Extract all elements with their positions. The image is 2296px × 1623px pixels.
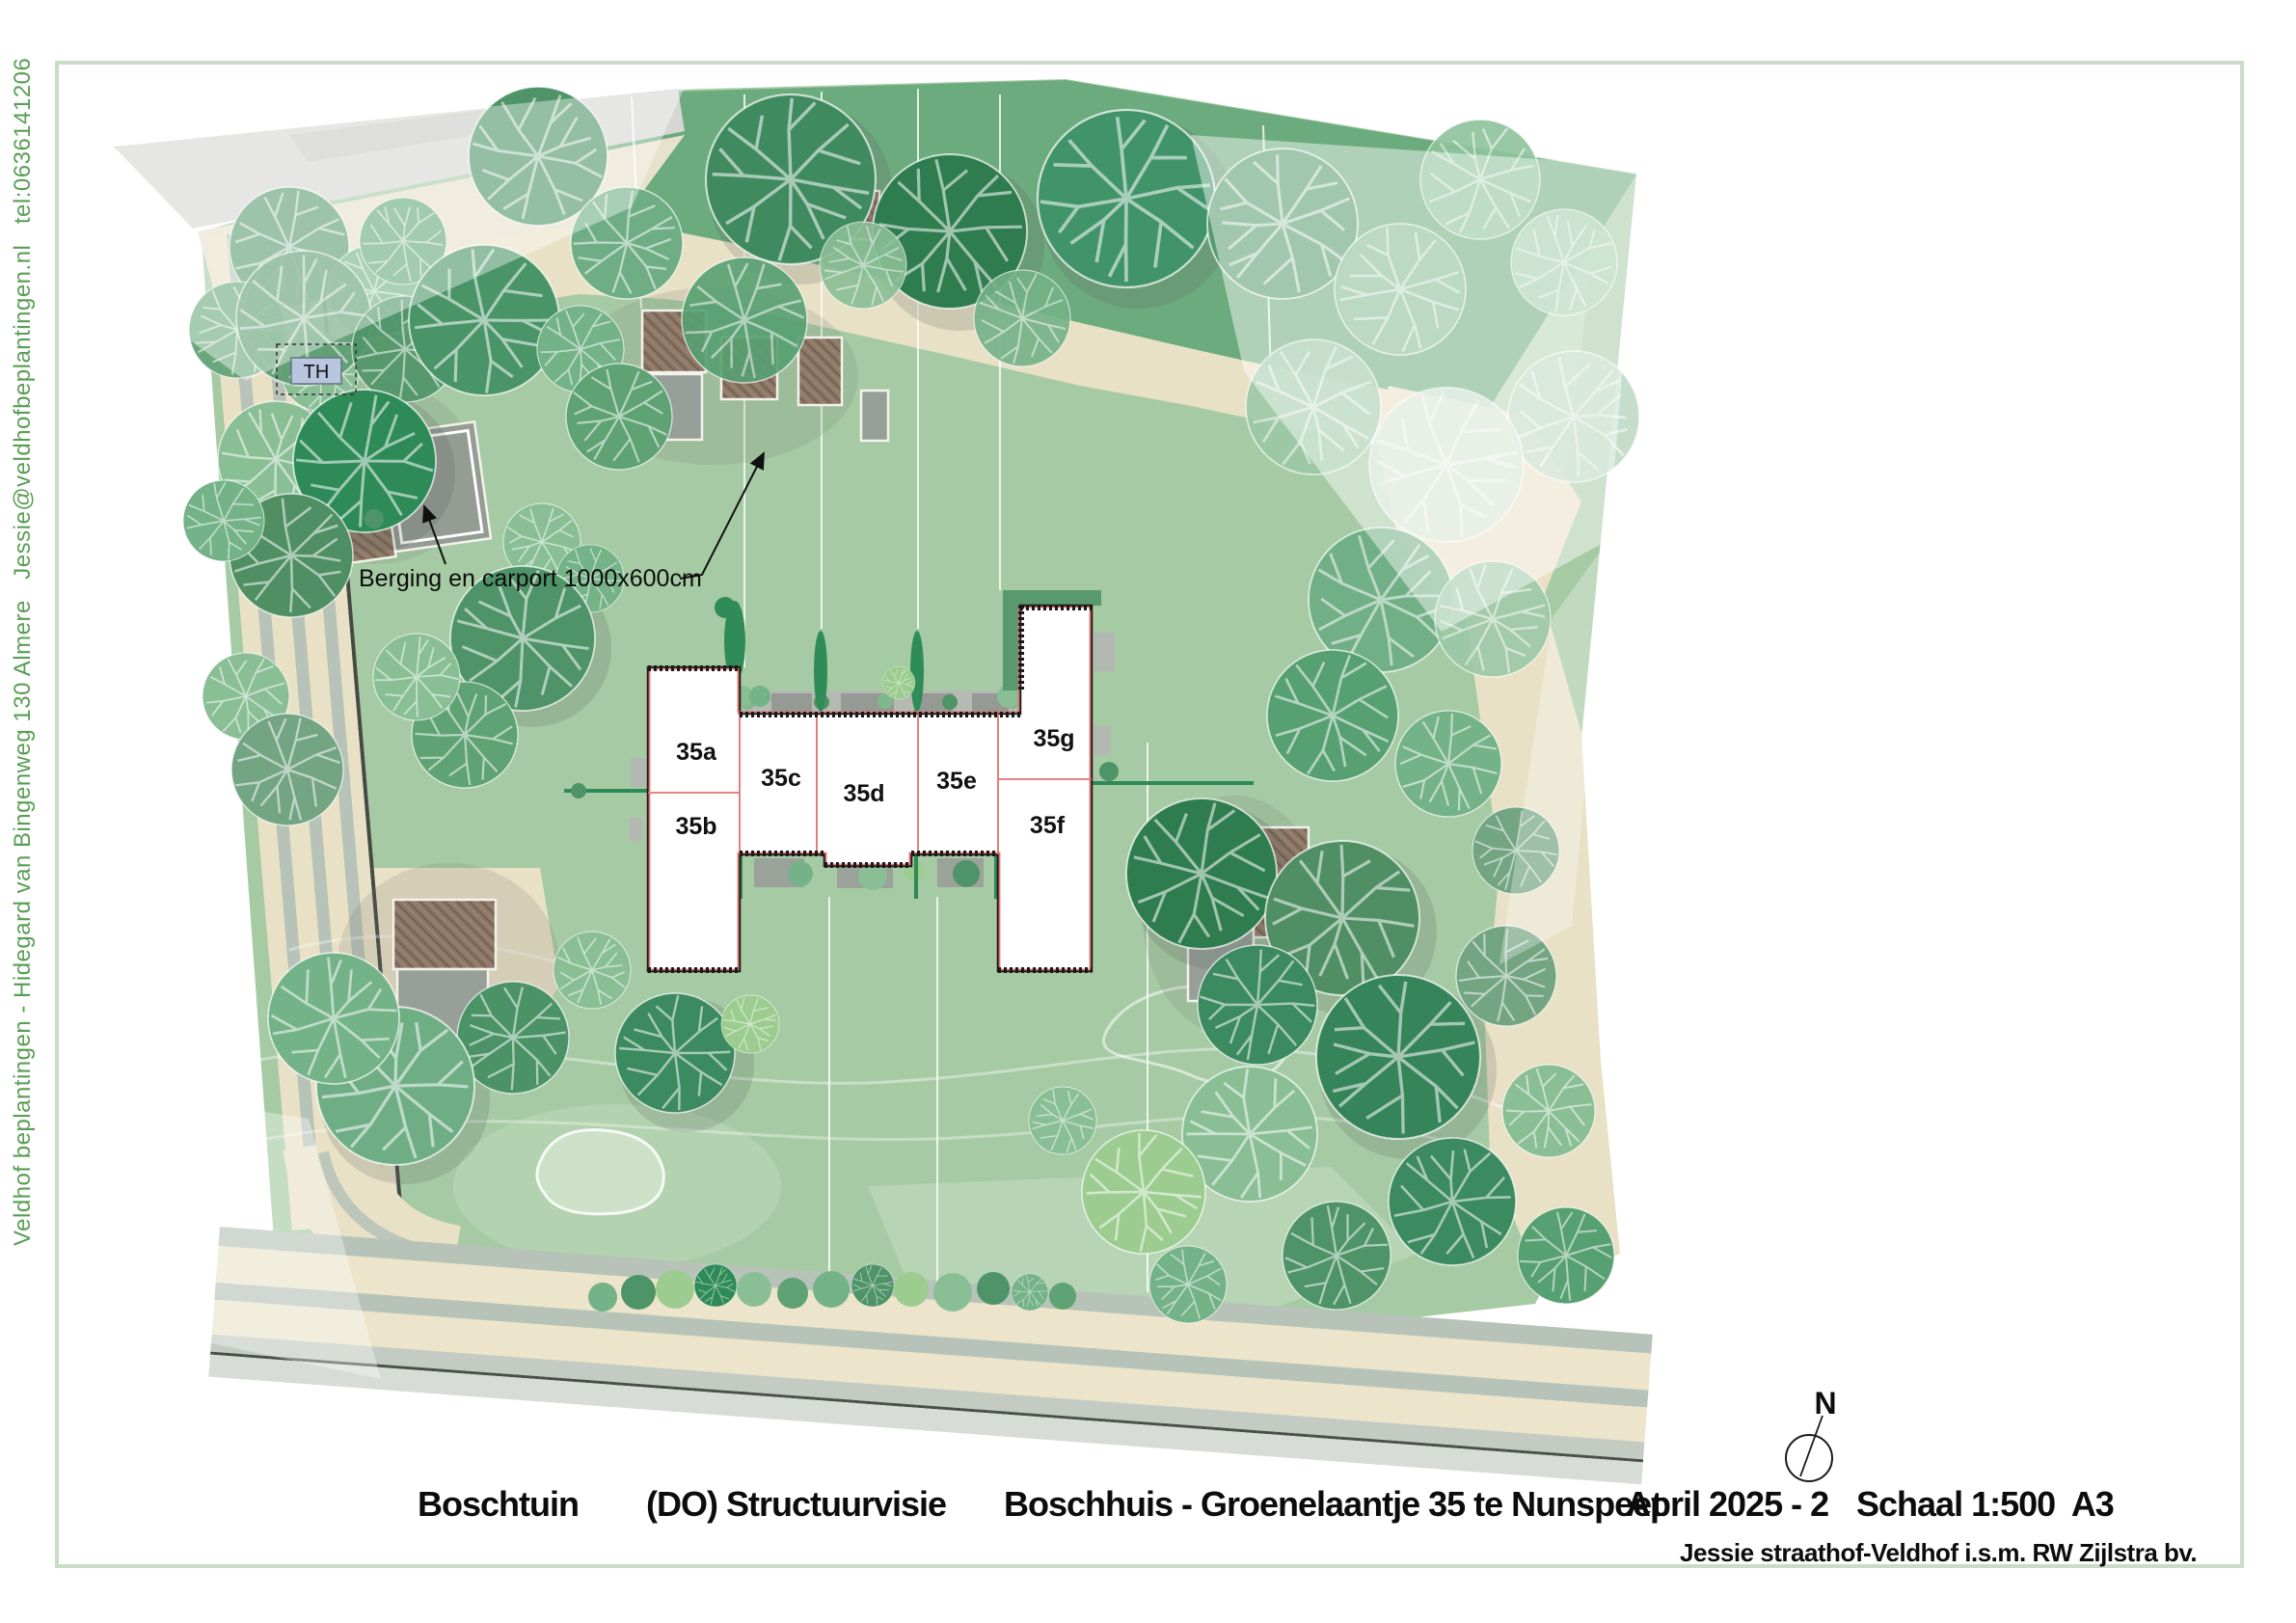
footer-date-version: April 2025 - 2 [1626, 1485, 1828, 1524]
compass-circle [1786, 1435, 1832, 1481]
unit-label-35d: 35d [843, 780, 884, 807]
footer-document-type: (DO) Structuurvisie [646, 1485, 946, 1524]
shed [393, 900, 496, 969]
compass-north: N [1786, 1386, 1837, 1481]
pond-shape [537, 1130, 663, 1214]
unit-label-35g: 35g [1033, 725, 1074, 752]
sidebar-vertical-credit: Veldhof beplantingen - Hidegard van Bing… [10, 79, 37, 1246]
compass-n-label: N [1814, 1386, 1836, 1420]
site-plan-drawing: 35a 35b 35c 35d 35e 35f 35g [0, 0, 2296, 1623]
plan-sheet: 35a 35b 35c 35d 35e 35f 35g [0, 0, 2296, 1623]
unit-label-35f: 35f [1030, 812, 1066, 839]
footer-scale-format: Schaal 1:500 A3 [1856, 1485, 2114, 1524]
unit-label-35b: 35b [675, 813, 716, 840]
shed [798, 338, 842, 405]
compass-needle [1800, 1416, 1823, 1476]
unit-label-35c: 35c [761, 765, 801, 792]
unit-label-35a: 35a [676, 739, 717, 766]
footer-designer-credit: Jessie straathof-Veldhof i.s.m. RW Zijls… [1680, 1533, 2197, 1572]
unit-label-35e: 35e [936, 768, 977, 795]
carport-slab [861, 391, 888, 441]
berging-annotation-text: Berging en carport 1000x600cm [359, 565, 702, 592]
footer-project-name: Boschtuin [418, 1485, 579, 1524]
footer-project-location: Boschhuis - Groenelaantje 35 te Nunspeet [1004, 1485, 1661, 1524]
th-label: TH [304, 362, 330, 383]
